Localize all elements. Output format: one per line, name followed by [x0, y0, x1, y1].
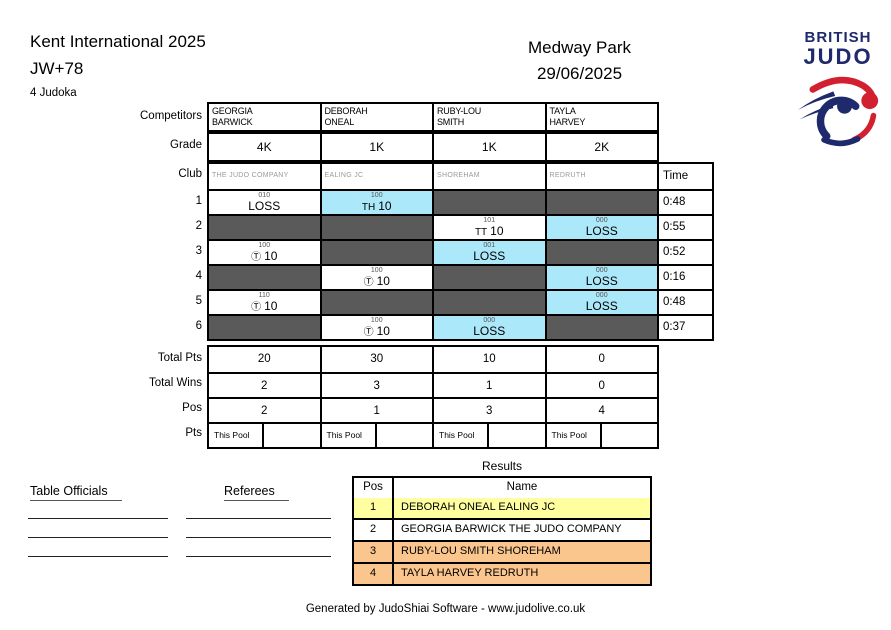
- results-row: 3RUBY-LOU SMITH SHOREHAM: [354, 540, 650, 562]
- results-pos: 4: [354, 564, 394, 584]
- total-pts-cell: 30: [320, 347, 433, 372]
- score-value: LOSS: [248, 199, 280, 213]
- match-number: 6: [40, 314, 202, 339]
- match-cell-score: 110Ⓣ10: [209, 291, 320, 314]
- time-header: Time: [659, 164, 712, 189]
- match-cell-score: 000LOSS: [545, 216, 658, 239]
- first-name: TAYLA: [550, 106, 658, 117]
- last-name: SMITH: [437, 117, 545, 128]
- category-title: JW+78: [30, 59, 206, 79]
- signature-line: [28, 538, 168, 557]
- results-title: Results: [352, 459, 652, 473]
- match-cell-empty: [320, 241, 433, 264]
- match-cell-score: 100Ⓣ10: [209, 241, 320, 264]
- tournament-title: Kent International 2025: [30, 32, 206, 52]
- club-cell: SHOREHAM: [432, 164, 545, 189]
- match-cell-empty: [209, 316, 320, 339]
- judoka-count: 4 Judoka: [30, 87, 206, 99]
- match-cell-empty: [209, 266, 320, 289]
- score-text: LOSS: [547, 300, 658, 313]
- first-name: RUBY-LOU: [437, 106, 545, 117]
- score-value: 10: [377, 274, 390, 288]
- total-pts-row: 20 30 10 0: [209, 347, 657, 372]
- match-row: 100Ⓣ10000LOSS: [209, 314, 657, 339]
- match-cell-score: 000LOSS: [545, 291, 658, 314]
- label-pts: Pts: [40, 427, 202, 439]
- score-text: TH10: [322, 200, 433, 214]
- grade-row: 4K 1K 1K 2K: [207, 132, 659, 162]
- results-row: 4TAYLA HARVEY REDRUTH: [354, 562, 650, 584]
- results-header-name: Name: [394, 478, 650, 498]
- score-value: 10: [378, 199, 391, 213]
- competitor-name: DEBORAH ONEAL: [320, 104, 433, 130]
- footer-credit: Generated by JudoShiai Software - www.ju…: [0, 603, 891, 615]
- total-wins-cell: 0: [545, 374, 658, 397]
- total-wins-cell: 1: [432, 374, 545, 397]
- signature-line: [186, 538, 331, 557]
- results-row: 1DEBORAH ONEAL EALING JC: [354, 498, 650, 518]
- match-number: 2: [40, 214, 202, 239]
- label-club: Club: [40, 168, 202, 180]
- score-value: LOSS: [586, 224, 618, 238]
- match-cell-empty: [432, 266, 545, 289]
- total-wins-cell: 2: [209, 374, 320, 397]
- match-cell-empty: [545, 241, 658, 264]
- results-pos: 2: [354, 520, 394, 540]
- results-name: RUBY-LOU SMITH SHOREHAM: [394, 542, 650, 562]
- match-cell-score: 100TH10: [320, 191, 433, 214]
- match-time: 0:37: [659, 314, 712, 339]
- win-mark: TH: [362, 202, 375, 213]
- score-text: LOSS: [547, 275, 658, 288]
- results-name: GEORGIA BARWICK THE JUDO COMPANY: [394, 520, 650, 540]
- results-row: 2GEORGIA BARWICK THE JUDO COMPANY: [354, 518, 650, 540]
- results-name: TAYLA HARVEY REDRUTH: [394, 564, 650, 584]
- results-pos: 3: [354, 542, 394, 562]
- pos-cell: 1: [320, 399, 433, 422]
- score-text: Ⓣ10: [209, 250, 320, 264]
- pts-cell: This Pool: [545, 424, 658, 447]
- label-total-wins: Total Wins: [40, 377, 202, 389]
- score-text: LOSS: [209, 200, 320, 213]
- british-judo-logo: BRITISH JUDO: [791, 30, 885, 148]
- label-pos: Pos: [40, 402, 202, 414]
- first-name: GEORGIA: [212, 106, 320, 117]
- match-cell-score: 100Ⓣ10: [320, 316, 433, 339]
- match-cell-empty: [432, 291, 545, 314]
- match-time: 0:48: [659, 189, 712, 214]
- signature-line: [28, 500, 168, 519]
- signature-line: [28, 519, 168, 538]
- club-cell: REDRUTH: [545, 164, 658, 189]
- time-cells: 0:480:550:520:160:480:37: [659, 189, 712, 339]
- match-cell-score: 101TT10: [432, 216, 545, 239]
- win-mark: Ⓣ: [364, 327, 374, 338]
- score-value: LOSS: [473, 324, 505, 338]
- match-row: 010LOSS100TH10: [209, 189, 657, 214]
- match-number: 5: [40, 289, 202, 314]
- match-cell-empty: [545, 316, 658, 339]
- label-total-pts: Total Pts: [40, 352, 202, 364]
- score-code: 100: [322, 191, 433, 200]
- label-grade: Grade: [40, 139, 202, 151]
- results-table: Pos Name 1DEBORAH ONEAL EALING JC2GEORGI…: [352, 476, 652, 586]
- match-cell-score: 000LOSS: [545, 266, 658, 289]
- judo-figure-icon: [796, 72, 880, 148]
- match-cell-score: 100Ⓣ10: [320, 266, 433, 289]
- results-name: DEBORAH ONEAL EALING JC: [394, 498, 650, 518]
- score-text: Ⓣ10: [322, 275, 433, 289]
- score-value: LOSS: [586, 274, 618, 288]
- match-row: 110Ⓣ10000LOSS: [209, 289, 657, 314]
- score-value: LOSS: [586, 299, 618, 313]
- total-pts-cell: 20: [209, 347, 320, 372]
- match-time: 0:48: [659, 289, 712, 314]
- grade-cell: 1K: [320, 134, 433, 160]
- competitor-name: RUBY-LOU SMITH: [432, 104, 545, 130]
- match-row: 100Ⓣ10001LOSS: [209, 239, 657, 264]
- pool-sheet-page: Kent International 2025 JW+78 4 Judoka M…: [0, 0, 891, 630]
- venue-block: Medway Park 29/06/2025: [452, 35, 707, 87]
- total-pts-cell: 10: [432, 347, 545, 372]
- match-time: 0:52: [659, 239, 712, 264]
- win-mark: Ⓣ: [251, 302, 261, 313]
- results-pos: 1: [354, 498, 394, 518]
- last-name: ONEAL: [325, 117, 433, 128]
- referees-label: Referees: [224, 484, 289, 501]
- match-cell-empty: [320, 216, 433, 239]
- score-value: 10: [377, 324, 390, 338]
- table-officials-label: Table Officials: [30, 484, 122, 501]
- match-time: 0:55: [659, 214, 712, 239]
- this-pool-label: This Pool: [322, 424, 377, 447]
- time-column: Time 0:480:550:520:160:480:37: [657, 162, 714, 341]
- pts-value-cell: [264, 424, 319, 447]
- pts-value-cell: [489, 424, 544, 447]
- pts-value-cell: [602, 424, 657, 447]
- last-name: BARWICK: [212, 117, 320, 128]
- match-table: THE JUDO COMPANY EALING JC SHOREHAM REDR…: [207, 162, 659, 341]
- event-date: 29/06/2025: [452, 61, 707, 87]
- match-cell-score: 001LOSS: [432, 241, 545, 264]
- match-cell-empty: [320, 291, 433, 314]
- pos-cell: 2: [209, 399, 320, 422]
- club-cell: THE JUDO COMPANY: [209, 164, 320, 189]
- score-text: TT10: [434, 225, 545, 239]
- match-number: 1: [40, 189, 202, 214]
- match-cell-empty: [209, 216, 320, 239]
- grade-cell: 1K: [432, 134, 545, 160]
- results-rows: 1DEBORAH ONEAL EALING JC2GEORGIA BARWICK…: [354, 498, 650, 584]
- pos-cell: 4: [545, 399, 658, 422]
- competitor-name: GEORGIA BARWICK: [209, 104, 320, 130]
- competitor-name: TAYLA HARVEY: [545, 104, 658, 130]
- this-pool-label: This Pool: [209, 424, 264, 447]
- win-mark: TT: [475, 227, 487, 238]
- match-row: 101TT10000LOSS: [209, 214, 657, 239]
- label-competitors: Competitors: [40, 110, 202, 122]
- signature-line: [186, 519, 331, 538]
- club-cell: EALING JC: [320, 164, 433, 189]
- total-wins-row: 2 3 1 0: [209, 372, 657, 397]
- venue-name: Medway Park: [452, 35, 707, 61]
- pts-value-cell: [377, 424, 432, 447]
- table-officials-signature-lines: [28, 500, 168, 557]
- score-value: 10: [490, 224, 503, 238]
- match-cell-score: 000LOSS: [432, 316, 545, 339]
- title-block: Kent International 2025 JW+78 4 Judoka: [30, 32, 206, 99]
- totals-table: 20 30 10 0 2 3 1 0 2 1 3 4 This Pool Thi…: [207, 345, 659, 449]
- results-header-row: Pos Name: [354, 478, 650, 498]
- score-text: LOSS: [547, 225, 658, 238]
- grade-cell: 4K: [209, 134, 320, 160]
- referees-signature-lines: [186, 500, 331, 557]
- match-cell-score: 010LOSS: [209, 191, 320, 214]
- total-wins-cell: 3: [320, 374, 433, 397]
- total-pts-cell: 0: [545, 347, 658, 372]
- results-header-pos: Pos: [354, 478, 394, 498]
- score-value: LOSS: [473, 249, 505, 263]
- this-pool-label: This Pool: [547, 424, 602, 447]
- score-value: 10: [264, 249, 277, 263]
- grade-cell: 2K: [545, 134, 658, 160]
- first-name: DEBORAH: [325, 106, 433, 117]
- win-mark: Ⓣ: [364, 277, 374, 288]
- pts-cell: This Pool: [432, 424, 545, 447]
- score-text: Ⓣ10: [209, 300, 320, 314]
- pos-cell: 3: [432, 399, 545, 422]
- match-cell-empty: [432, 191, 545, 214]
- match-rows: 010LOSS100TH10101TT10000LOSS100Ⓣ10001LOS…: [209, 189, 657, 339]
- score-value: 10: [264, 299, 277, 313]
- pts-cell: This Pool: [209, 424, 320, 447]
- this-pool-label: This Pool: [434, 424, 489, 447]
- match-cell-empty: [545, 191, 658, 214]
- score-text: Ⓣ10: [322, 325, 433, 339]
- pts-row: This Pool This Pool This Pool This Pool: [209, 422, 657, 447]
- match-number: 3: [40, 239, 202, 264]
- logo-text-judo: JUDO: [791, 46, 885, 68]
- score-text: LOSS: [434, 325, 545, 338]
- win-mark: Ⓣ: [251, 252, 261, 263]
- club-row: THE JUDO COMPANY EALING JC SHOREHAM REDR…: [209, 164, 657, 189]
- match-row: 100Ⓣ10000LOSS: [209, 264, 657, 289]
- match-time: 0:16: [659, 264, 712, 289]
- last-name: HARVEY: [550, 117, 658, 128]
- signature-line: [186, 500, 331, 519]
- competitors-row: GEORGIA BARWICK DEBORAH ONEAL RUBY-LOU S…: [207, 102, 659, 132]
- match-number: 4: [40, 264, 202, 289]
- pts-cell: This Pool: [320, 424, 433, 447]
- pos-row: 2 1 3 4: [209, 397, 657, 422]
- score-text: LOSS: [434, 250, 545, 263]
